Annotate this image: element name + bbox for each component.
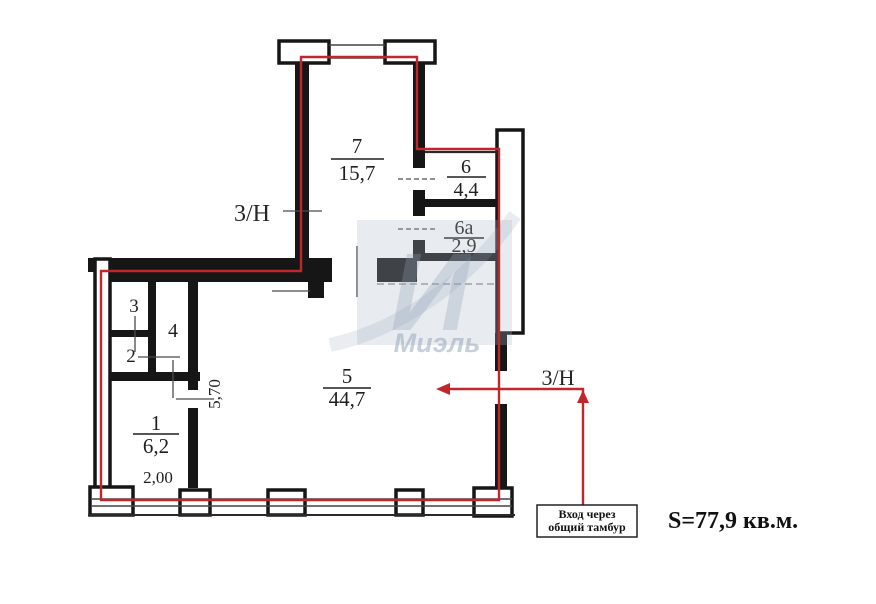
entrance-arrowhead-up — [577, 390, 589, 403]
wall-segment — [110, 330, 148, 337]
entrance-note-line2: общий тамбур — [548, 520, 626, 534]
entrance-note-line1: Вход через — [558, 507, 615, 521]
pier — [396, 490, 423, 515]
room-1-area: 6,2 — [143, 434, 169, 458]
room-6-number: 6 — [461, 156, 471, 178]
room-7-label: 7 15,7 — [331, 134, 384, 185]
room-5-number: 5 — [342, 364, 353, 388]
room-4-number: 4 — [168, 320, 178, 342]
room5-height-dim: 5,70 — [205, 379, 224, 409]
pier — [180, 490, 210, 515]
room-7-number: 7 — [352, 134, 363, 158]
wall-segment — [110, 372, 200, 381]
wall-segment — [413, 190, 425, 216]
total-area-label: S=77,9 кв.м. — [668, 508, 798, 534]
entrance-arrowhead-left — [436, 383, 450, 395]
pier — [268, 490, 305, 515]
adjacent-unit-label-right: 3/Н — [542, 365, 575, 390]
pier — [385, 41, 435, 63]
room-7-area: 15,7 — [339, 161, 376, 185]
adjacent-unit-label-left: 3/Н — [234, 201, 270, 227]
wall-segment — [148, 282, 156, 374]
room-1-label: 1 6,2 — [133, 411, 179, 458]
entrance-arrow-line — [447, 389, 583, 505]
pier — [279, 41, 329, 63]
room-1-number: 1 — [151, 411, 162, 435]
room-6-label: 6 4,4 — [447, 156, 486, 201]
pier — [474, 488, 512, 516]
room-5-area: 44,7 — [329, 387, 366, 411]
wall-segment — [188, 408, 198, 488]
watermark-name: Миэль — [394, 328, 481, 358]
wall-segment — [188, 372, 198, 390]
floor-plan-page: 7 15,7 6 4,4 6а 2,9 5 44,7 1 6,2 3 2 4 2 — [0, 0, 876, 604]
wall-segment — [188, 282, 198, 372]
entrance-note-box: Вход через общий тамбур — [537, 505, 637, 537]
room-6-area: 4,4 — [454, 179, 479, 201]
wall-segment — [95, 259, 110, 488]
wall-segment — [413, 59, 425, 168]
watermark: И Миэль — [330, 215, 515, 358]
room-5-label: 5 44,7 — [323, 364, 371, 411]
wall-segment — [495, 404, 507, 488]
wall-segment — [308, 282, 324, 298]
room1-width-dim: 2,00 — [143, 468, 173, 487]
floor-plan-drawing: 7 15,7 6 4,4 6а 2,9 5 44,7 1 6,2 3 2 4 2 — [0, 0, 876, 604]
room-2-number: 2 — [126, 346, 136, 367]
room-3-number: 3 — [129, 296, 139, 317]
